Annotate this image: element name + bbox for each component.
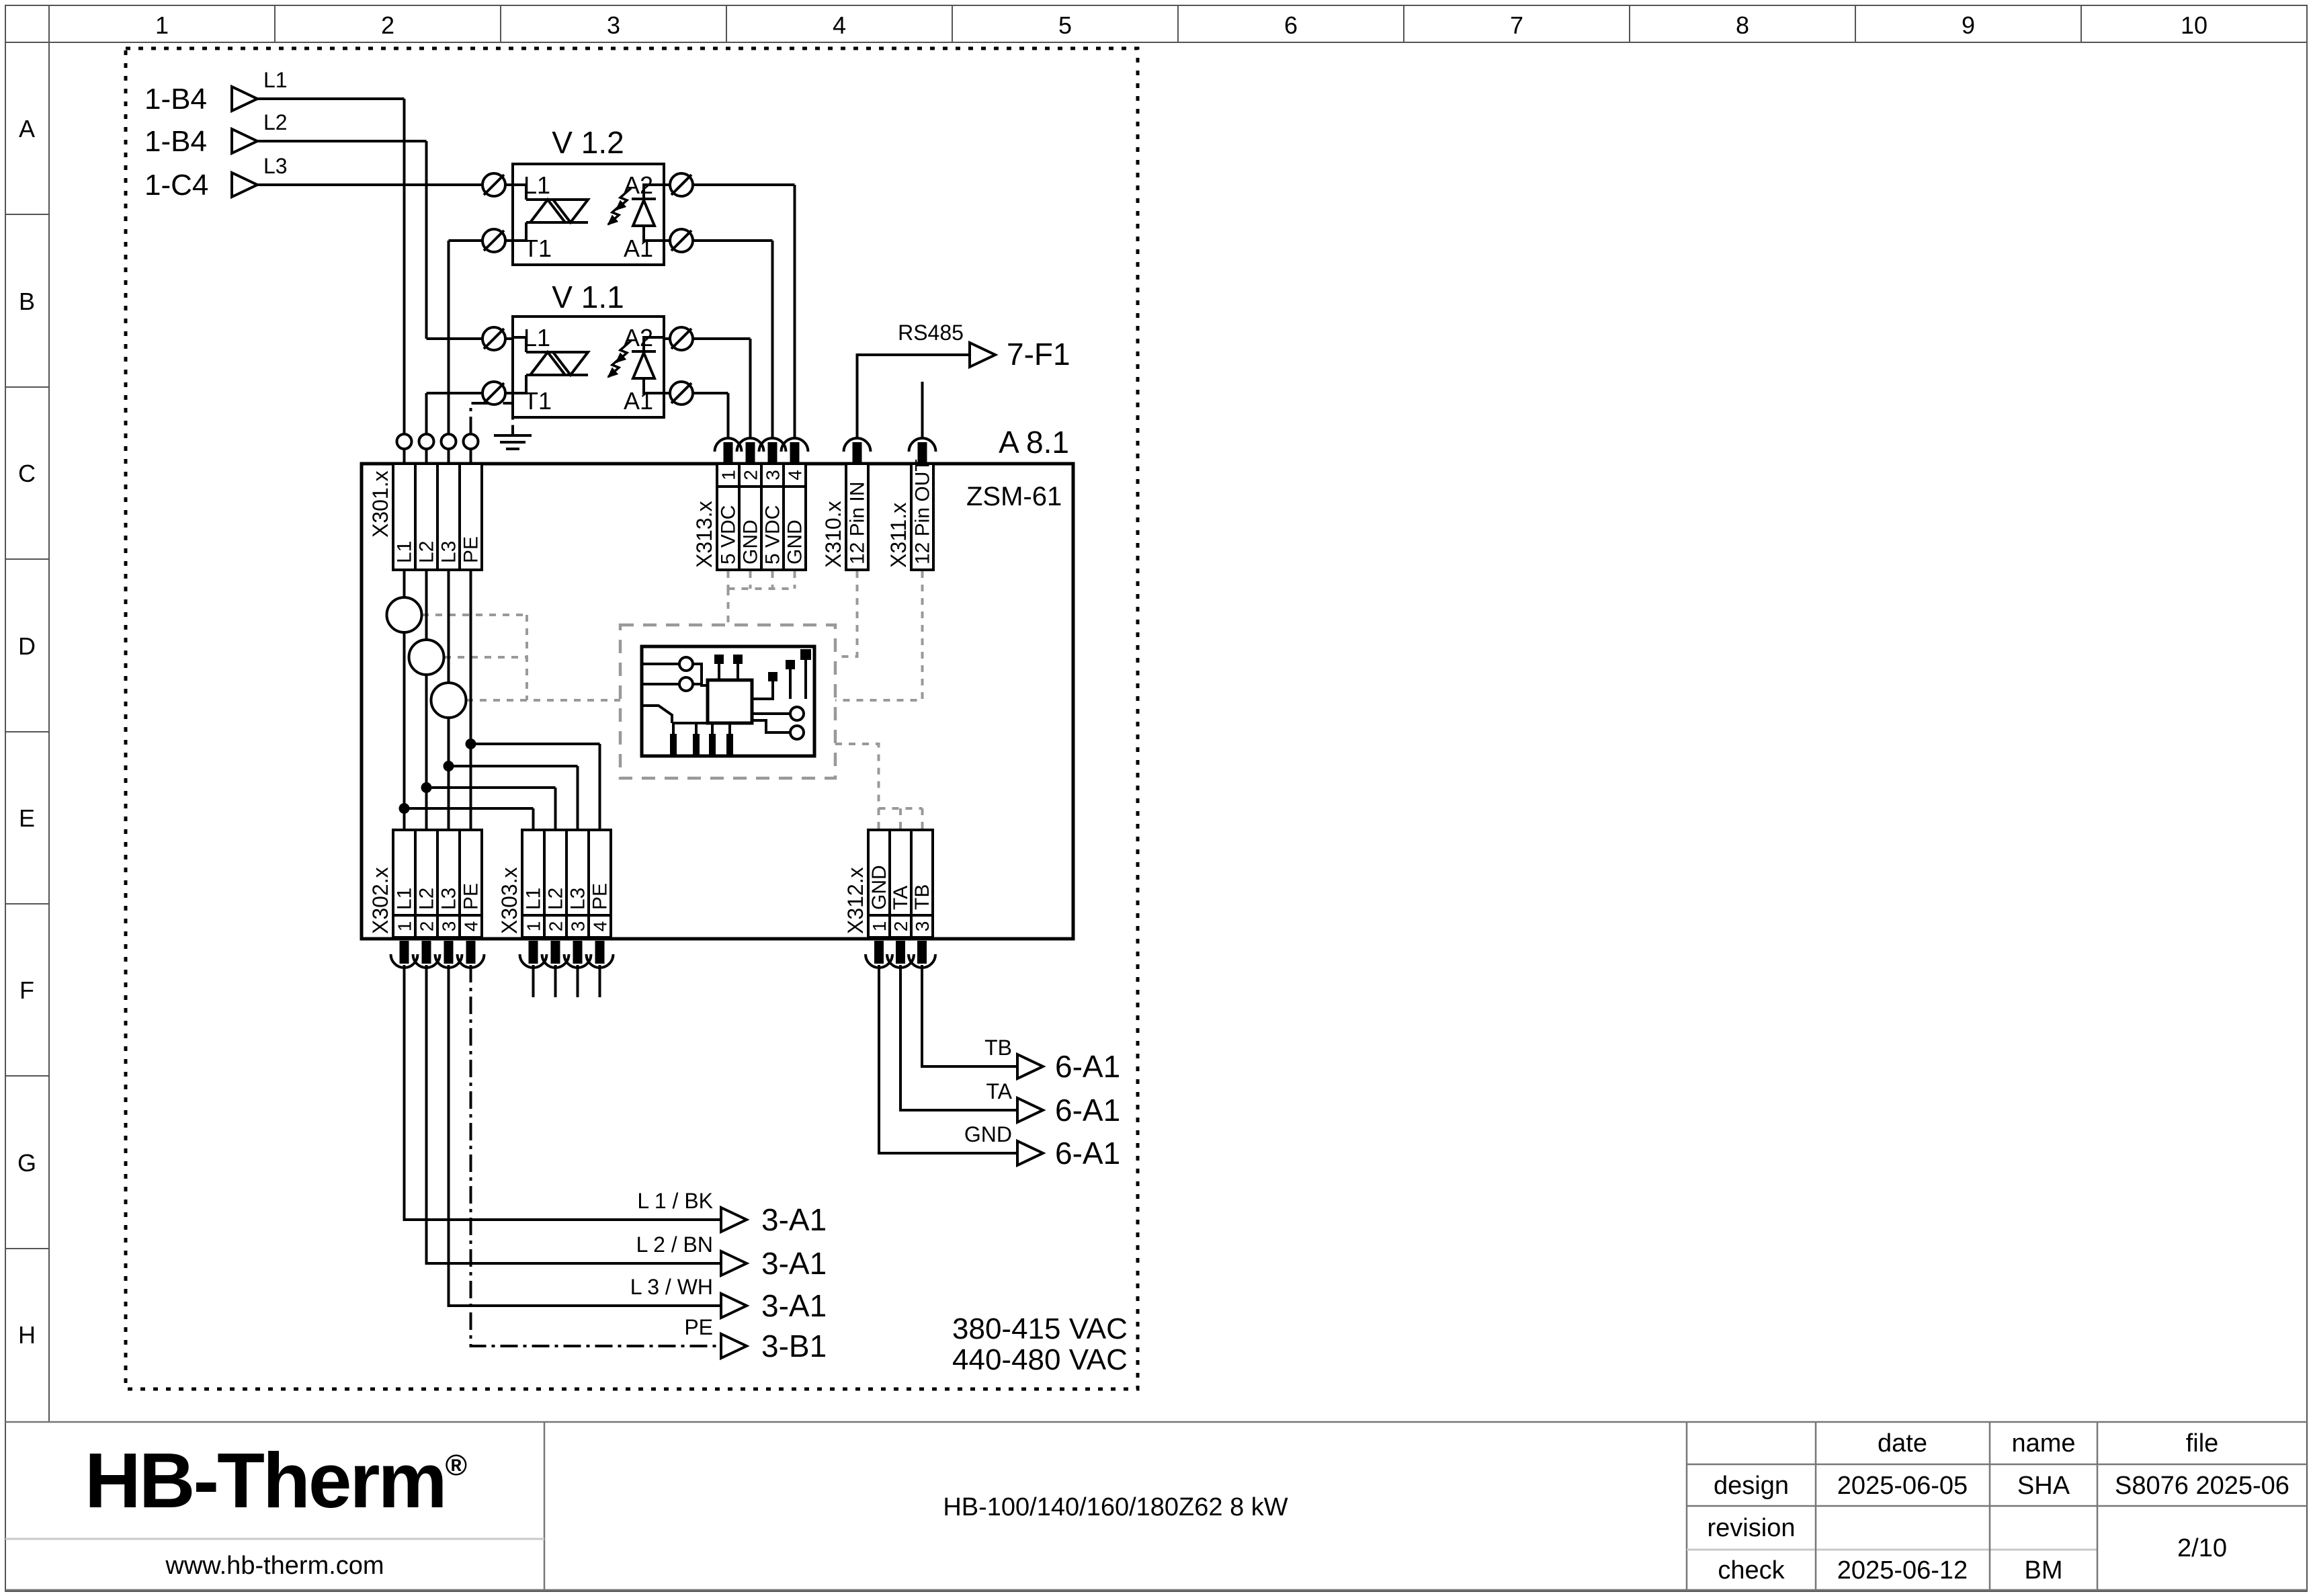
output-arrow-icon [1017, 1098, 1043, 1122]
sheet-border-and-rulers: 1 2 3 4 5 6 7 8 9 10 A B C D E F G H [5, 5, 2307, 1591]
terminal-cell-label: L1 [394, 541, 416, 563]
output-arrow-icon [721, 1334, 747, 1358]
terminal-cell-label: L1 [394, 888, 416, 910]
terminal-cell-label: 12 Pin IN [847, 482, 869, 564]
pcb-icon [642, 646, 814, 756]
ruler-col-label: 1 [155, 11, 169, 39]
input-references: 1-B4 1-B4 1-C4 L1 L2 L3 [144, 68, 288, 202]
input-arrow-icon [232, 129, 257, 153]
power-wire-label: PE [684, 1315, 713, 1339]
triac-module-v12: V 1.2 L1 A2 T1 A1 [482, 125, 693, 265]
ruler-row-label: D [18, 632, 36, 660]
terminal-cell-label: L1 [523, 888, 545, 910]
terminal-pin-number: 2 [546, 921, 566, 932]
triac-module-v11: V 1.1 L1 A2 T1 A1 [482, 280, 693, 417]
terminal-group-label: X311.x [886, 503, 911, 568]
ruler-row-label: F [19, 976, 34, 1004]
terminal-cell-label: L3 [567, 888, 589, 910]
revision-label: revision [1708, 1514, 1796, 1542]
terminal-cell-label: L2 [545, 888, 567, 910]
triac-pin-label: A1 [624, 387, 653, 415]
terminal-group-label: X312.x [843, 867, 868, 934]
voltage-line: 380-415 VAC [952, 1312, 1128, 1345]
voltage-ratings: 380-415 VAC 440-480 VAC [952, 1312, 1128, 1376]
terminal-pin-number: 2 [741, 470, 761, 480]
triac-pin-label: A2 [624, 324, 653, 351]
terminal-x313: X313.x 1 2 3 4 5 VDC GND 5 VDC GND [692, 464, 806, 570]
triac-title: V 1.2 [552, 125, 624, 160]
document-title: HB-100/140/160/180Z62 8 kW [943, 1493, 1288, 1521]
comm-target: 6-A1 [1055, 1049, 1120, 1084]
terminal-cell-label: 12 Pin OUT [912, 459, 934, 564]
title-block: HB-Therm® www.hb-therm.com HB-100/140/16… [5, 1422, 2307, 1590]
terminal-pin-number: 4 [590, 921, 611, 932]
power-wire-label: L 1 / BK [637, 1189, 713, 1213]
ruler-col-label: 8 [1736, 11, 1749, 39]
input-ref-label: 1-B4 [144, 125, 207, 158]
terminal-cell-label: GND [740, 519, 762, 564]
terminal-group-label: X313.x [692, 501, 716, 568]
design-label: design [1714, 1472, 1789, 1500]
ruler-col-label: 2 [381, 11, 394, 39]
power-target: 3-B1 [761, 1329, 827, 1363]
terminal-cell-label: GND [784, 519, 806, 564]
comm-target: 6-A1 [1055, 1093, 1120, 1128]
rs485-reference: RS485 7-F1 [898, 321, 1070, 372]
terminal-pin-number: 4 [785, 470, 806, 480]
comm-label: GND [964, 1122, 1012, 1146]
phase-label: L2 [263, 110, 288, 134]
file-number: S8076 2025-06 [2115, 1472, 2289, 1500]
phase-label: L3 [263, 154, 288, 178]
phase-label: L1 [263, 68, 288, 92]
power-output-references: L 1 / BK L 2 / BN L 3 / WH PE 3-A1 3-A1 … [630, 1189, 827, 1363]
output-arrow-icon [721, 1251, 747, 1275]
triac-pin-label: L1 [523, 171, 550, 199]
schematic-sheet: 1 2 3 4 5 6 7 8 9 10 A B C D E F G H [0, 0, 2313, 1596]
terminal-cell-label: PE [460, 883, 482, 910]
check-date: 2025-06-12 [1837, 1556, 1968, 1585]
block-model-label: ZSM-61 [966, 482, 1062, 511]
page-number: 2/10 [2177, 1534, 2227, 1562]
input-ref-label: 1-C4 [144, 169, 208, 202]
comm-label: TB [984, 1036, 1012, 1060]
ruler-row-label: A [19, 115, 35, 142]
output-arrow-icon [1017, 1054, 1043, 1079]
terminal-group-label: X302.x [368, 867, 392, 934]
input-ref-label: 1-B4 [144, 83, 207, 116]
ruler-col-label: 3 [607, 11, 620, 39]
company-logo: HB-Therm® [85, 1437, 467, 1524]
terminal-pin-number: 3 [912, 921, 933, 932]
rs485-target: 7-F1 [1007, 337, 1070, 372]
wire-junction-dots [399, 739, 476, 814]
power-target: 3-A1 [761, 1288, 827, 1323]
terminal-cell-label: GND [868, 865, 890, 910]
terminal-x301: X301.x L1 L2 L3 PE [368, 464, 482, 570]
comm-references: TB TA GND 6-A1 6-A1 6-A1 [964, 1036, 1120, 1171]
terminal-x311: X311.x 12 Pin OUT [886, 459, 934, 570]
terminal-x303: X303.x L1 L2 L3 PE 1 2 3 4 [497, 830, 612, 937]
terminal-pin-number: 3 [439, 921, 460, 932]
ruler-row-label: C [18, 460, 36, 487]
terminal-cell-label: PE [589, 883, 612, 910]
ruler-col-label: 4 [833, 11, 846, 39]
terminal-cell-label: 5 VDC [718, 505, 740, 564]
table-header-name: name [2011, 1429, 2075, 1458]
voltage-line: 440-480 VAC [952, 1343, 1128, 1376]
output-arrow-icon [970, 343, 995, 367]
terminal-pin-number: 1 [394, 921, 415, 932]
terminal-cell-label: TB [911, 884, 933, 910]
power-target: 3-A1 [761, 1202, 827, 1237]
ruler-col-label: 9 [1962, 11, 1975, 39]
ruler-col-label: 7 [1510, 11, 1523, 39]
terminal-pin-number: 2 [890, 921, 911, 932]
ruler-row-label: E [19, 804, 35, 832]
terminal-cell-label: TA [890, 886, 912, 910]
output-arrow-icon [721, 1294, 747, 1318]
table-header-file: file [2186, 1429, 2219, 1458]
terminal-pin-number: 1 [718, 470, 739, 480]
terminal-x310: X310.x 12 Pin IN [821, 464, 869, 570]
terminal-cell-label: L2 [416, 888, 438, 910]
check-name: BM [2025, 1556, 2063, 1585]
terminal-entry-circles [397, 434, 478, 449]
logo-text: HB-Therm [85, 1437, 446, 1524]
terminal-pin-number: 2 [417, 921, 437, 932]
power-target: 3-A1 [761, 1246, 827, 1281]
ruler-col-label: 10 [2181, 11, 2207, 39]
input-arrow-icon [232, 87, 257, 111]
ruler-row-label: G [17, 1149, 36, 1177]
power-wire-label: L 2 / BN [636, 1232, 713, 1257]
comm-label: TA [986, 1079, 1012, 1103]
comm-target: 6-A1 [1055, 1136, 1120, 1171]
terminal-pin-number: 4 [461, 921, 482, 932]
terminal-x312: X312.x GND TA TB 1 2 3 [843, 830, 933, 937]
triac-pin-label: A2 [624, 171, 653, 199]
terminal-cell-label: 5 VDC [762, 505, 784, 564]
triac-pin-label: A1 [624, 235, 653, 262]
terminal-cell-label: PE [460, 536, 482, 563]
check-label: check [1718, 1556, 1785, 1585]
terminal-group-label: X303.x [497, 867, 521, 934]
terminal-cell-label: L3 [438, 541, 460, 563]
terminal-pin-number: 3 [568, 921, 589, 932]
design-date: 2025-06-05 [1837, 1472, 1968, 1500]
wiring-diagram-svg: 1 2 3 4 5 6 7 8 9 10 A B C D E F G H [0, 0, 2313, 1596]
terminal-cell-label: L3 [438, 888, 460, 910]
power-wires [257, 99, 1017, 1306]
triac-title: V 1.1 [552, 280, 624, 314]
company-website: www.hb-therm.com [165, 1552, 384, 1580]
terminal-pin-number: 1 [523, 921, 544, 932]
triac-pin-label: T1 [523, 235, 552, 262]
terminal-pin-number: 3 [763, 470, 784, 480]
triac-pin-label: T1 [523, 387, 552, 415]
ruler-row-label: B [19, 288, 35, 315]
output-arrow-icon [1017, 1141, 1043, 1165]
design-name: SHA [2017, 1472, 2070, 1500]
rs485-label: RS485 [898, 321, 964, 345]
ruler-row-label: H [18, 1321, 36, 1349]
ground-symbol-icon [494, 435, 532, 449]
ruler-col-label: 6 [1284, 11, 1298, 39]
registered-mark: ® [446, 1449, 467, 1482]
terminal-cell-label: L2 [416, 541, 438, 563]
input-arrow-icon [232, 173, 257, 197]
triac-pin-label: L1 [523, 324, 550, 351]
terminal-pin-number: 1 [869, 921, 890, 932]
output-arrow-icon [721, 1208, 747, 1232]
block-ref-label: A 8.1 [999, 425, 1069, 460]
terminal-group-label: X301.x [368, 470, 392, 538]
terminal-x302: X302.x L1 L2 L3 PE 1 2 3 4 [368, 830, 482, 937]
terminal-group-label: X310.x [821, 501, 845, 568]
power-wire-label: L 3 / WH [630, 1275, 713, 1299]
ruler-col-label: 5 [1058, 11, 1072, 39]
table-header-date: date [1878, 1429, 1927, 1458]
